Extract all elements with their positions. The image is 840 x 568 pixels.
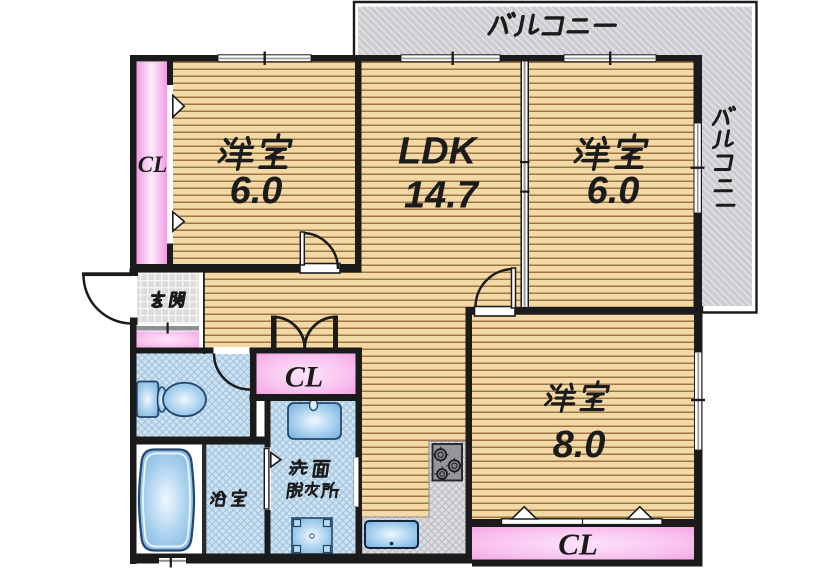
svg-text:CL: CL [138, 152, 167, 177]
svg-text:6.0: 6.0 [587, 170, 640, 212]
svg-text:CL: CL [285, 361, 323, 394]
svg-text:LDK: LDK [398, 131, 479, 173]
svg-text:8.0: 8.0 [553, 424, 606, 466]
svg-text:14.7: 14.7 [404, 175, 480, 217]
svg-text:6.0: 6.0 [230, 170, 283, 212]
svg-text:CL: CL [558, 527, 598, 562]
